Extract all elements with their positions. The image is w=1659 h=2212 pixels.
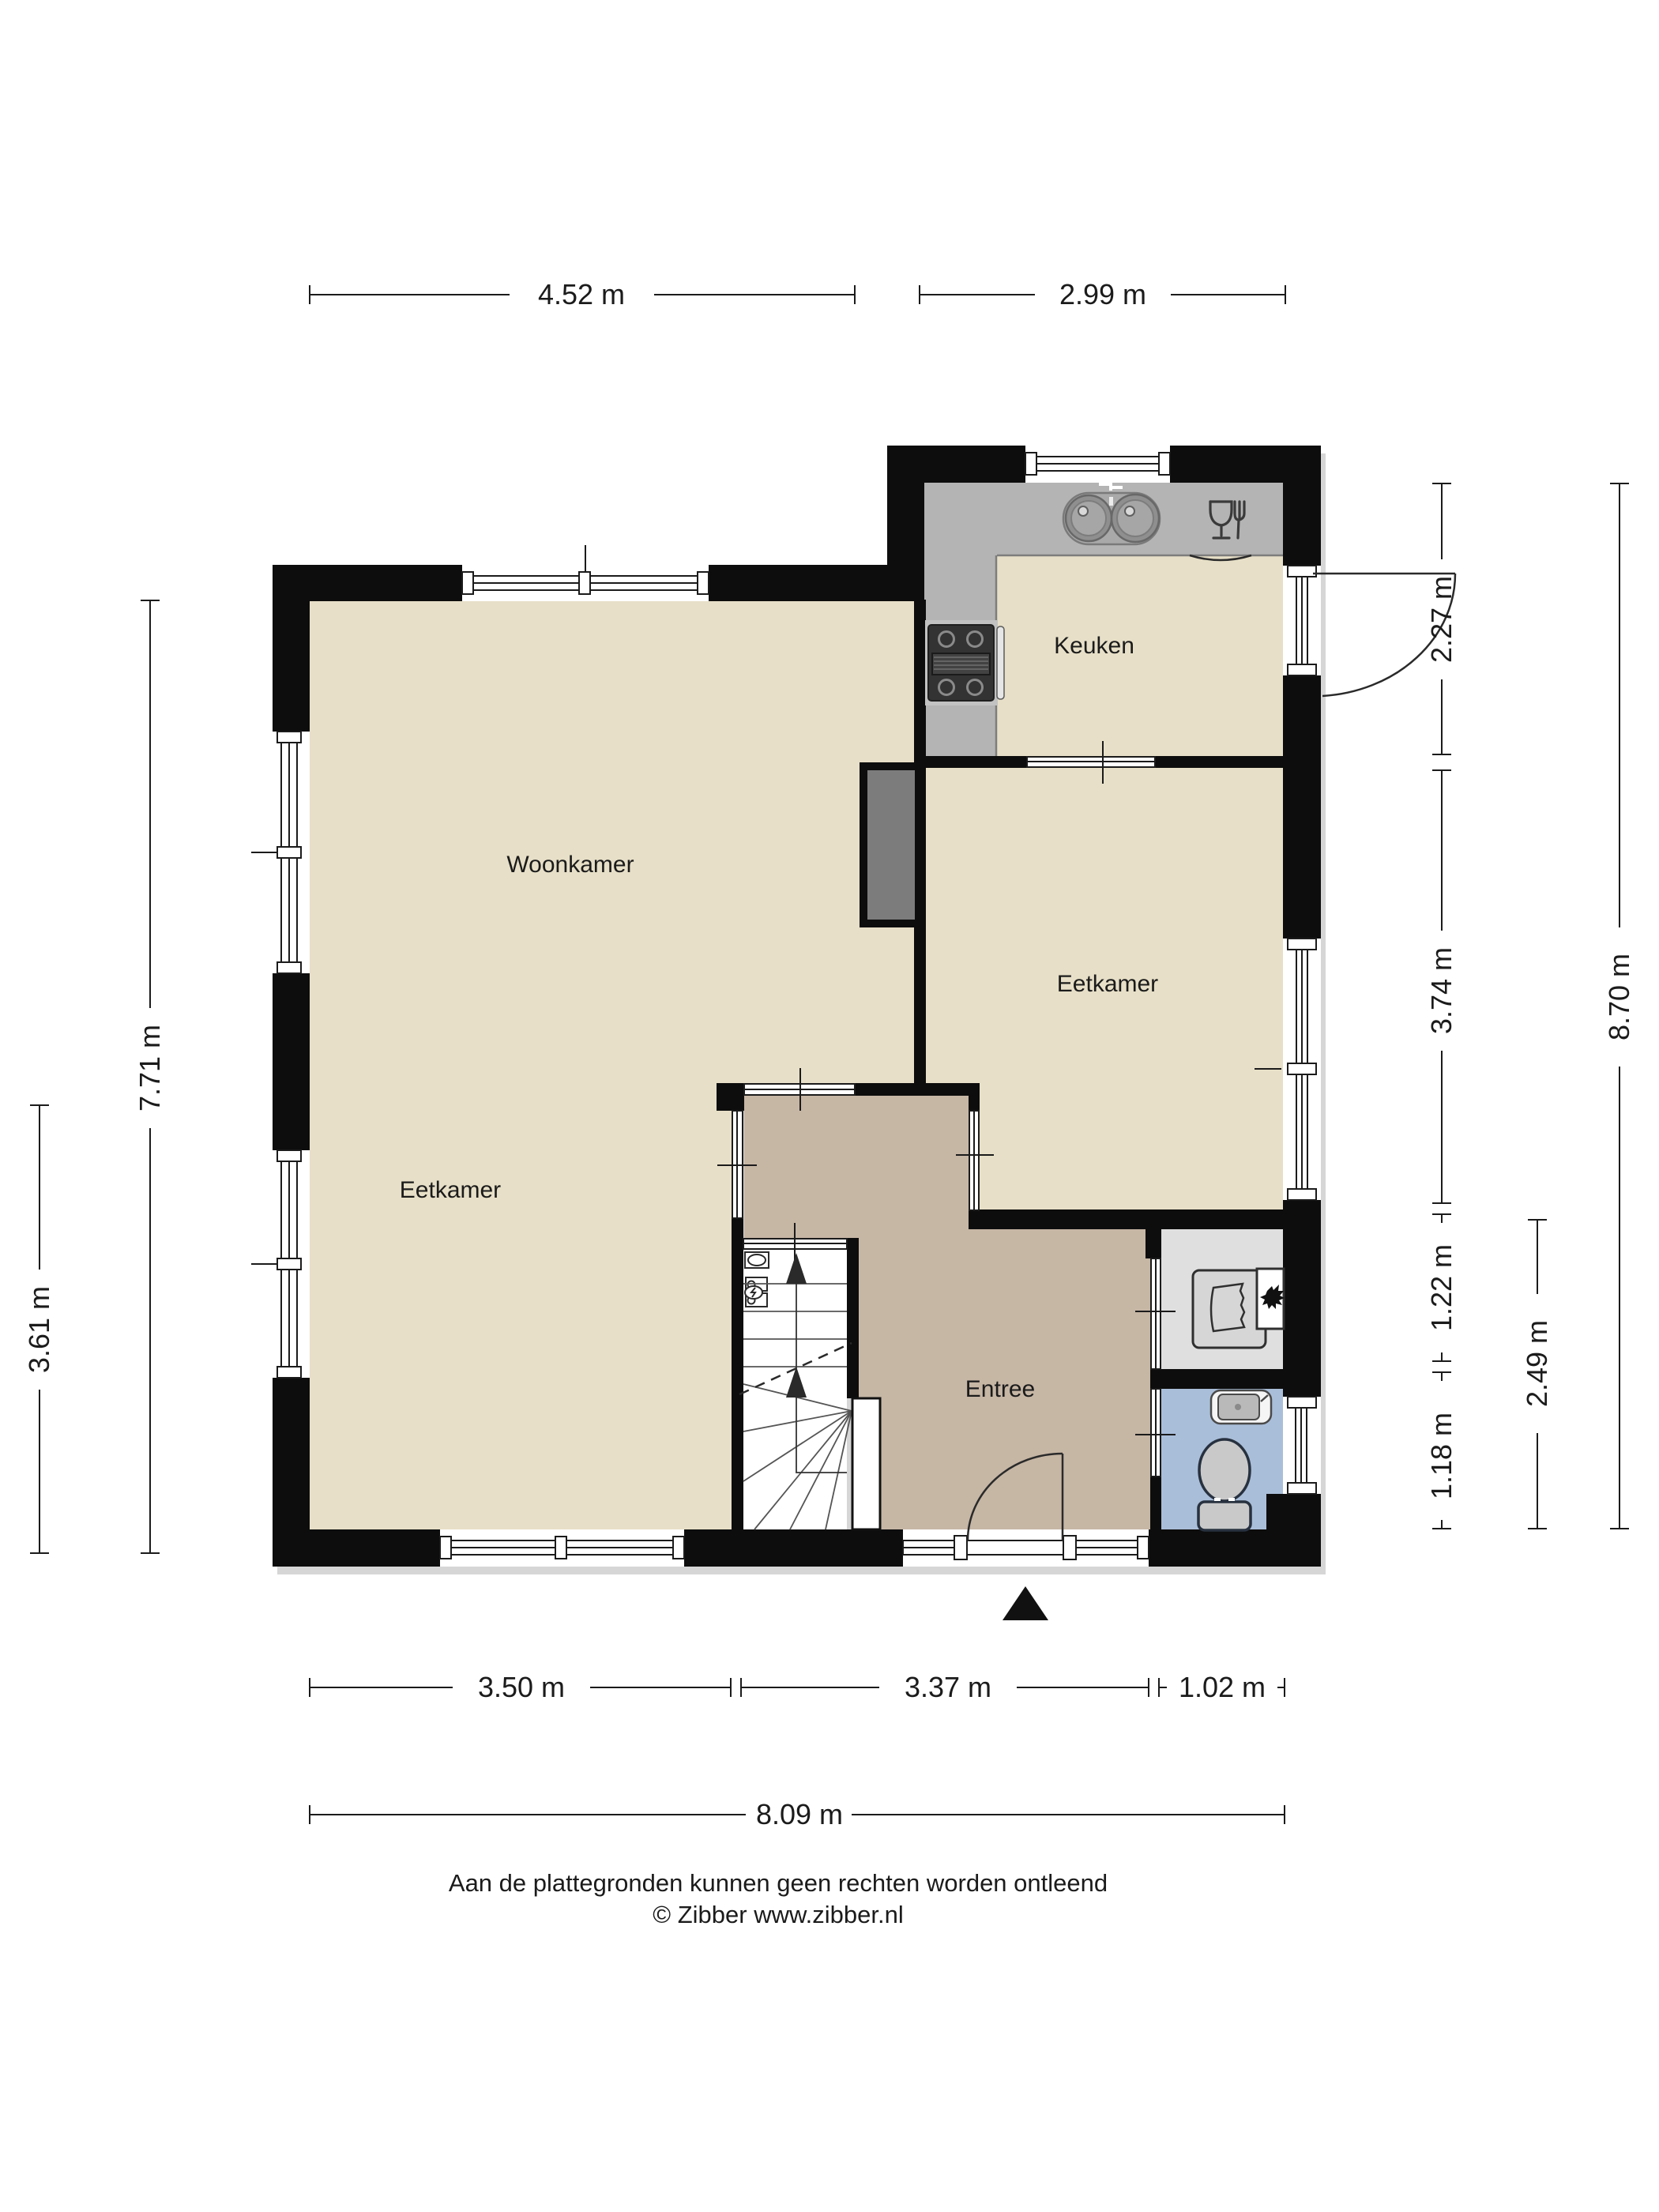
svg-text:1.22 m: 1.22 m [1425, 1244, 1458, 1331]
svg-text:2.27 m: 2.27 m [1425, 576, 1458, 663]
svg-text:2.99 m: 2.99 m [1059, 278, 1146, 310]
svg-text:3.74 m: 3.74 m [1425, 947, 1458, 1034]
svg-text:Eetkamer: Eetkamer [1057, 971, 1158, 997]
svg-text:Woonkamer: Woonkamer [506, 852, 634, 878]
svg-text:4.52 m: 4.52 m [538, 278, 625, 310]
svg-text:8.09 m: 8.09 m [756, 1798, 843, 1830]
svg-text:Aan de plattegronden kunnen ge: Aan de plattegronden kunnen geen rechten… [449, 1869, 1108, 1897]
svg-text:3.61 m: 3.61 m [23, 1286, 55, 1373]
svg-text:3.37 m: 3.37 m [905, 1671, 991, 1703]
svg-text:7.71 m: 7.71 m [134, 1025, 166, 1112]
svg-text:Keuken: Keuken [1054, 633, 1134, 659]
svg-text:© Zibber www.zibber.nl: © Zibber www.zibber.nl [653, 1901, 903, 1928]
svg-text:2.49 m: 2.49 m [1521, 1320, 1553, 1407]
svg-text:3.50 m: 3.50 m [478, 1671, 565, 1703]
svg-text:Eetkamer: Eetkamer [400, 1177, 501, 1203]
svg-text:8.70 m: 8.70 m [1603, 954, 1635, 1040]
svg-text:1.02 m: 1.02 m [1179, 1671, 1266, 1703]
svg-text:Entree: Entree [965, 1376, 1035, 1402]
svg-text:1.18 m: 1.18 m [1425, 1413, 1458, 1499]
